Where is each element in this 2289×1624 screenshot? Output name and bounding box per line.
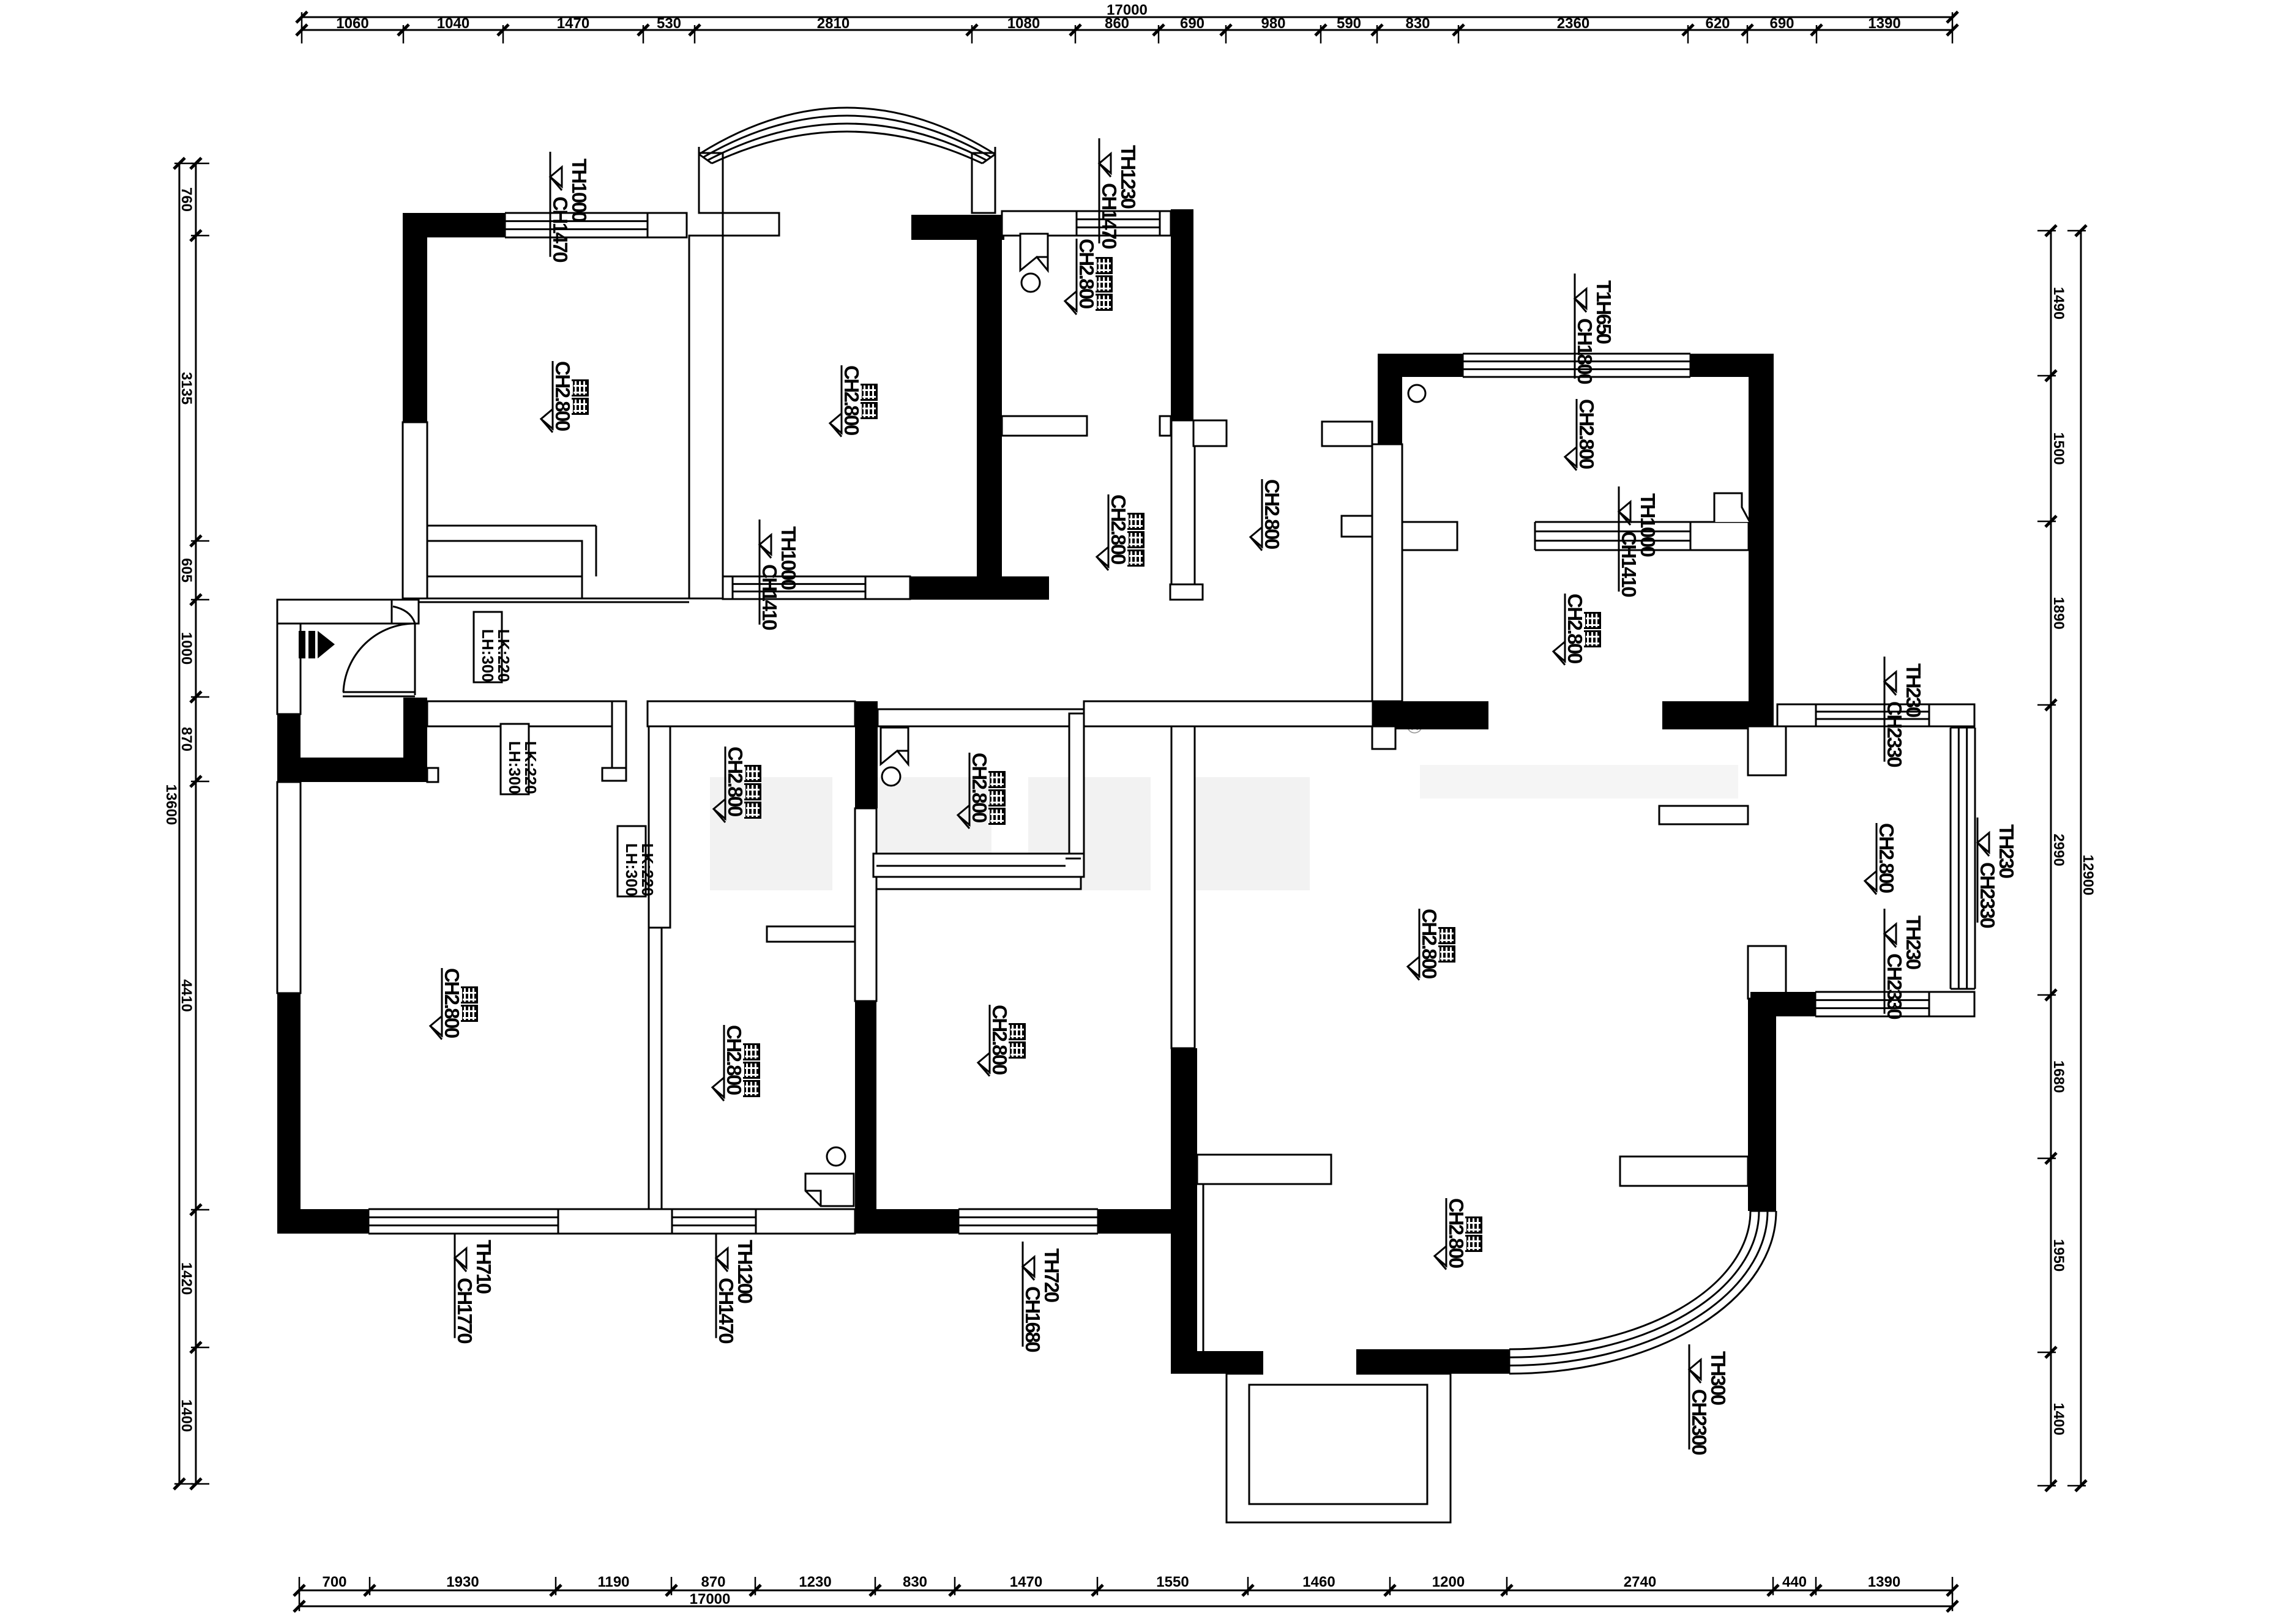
svg-text:1080: 1080 [1007, 15, 1040, 32]
svg-text:1400: 1400 [178, 1399, 195, 1432]
svg-text:CH1410: CH1410 [1618, 531, 1640, 597]
svg-text:CH1470: CH1470 [1098, 183, 1121, 248]
svg-text:CH2.800: CH2.800 [1575, 399, 1598, 469]
svg-text:CH2.800: CH2.800 [968, 753, 991, 822]
svg-text:LH:300: LH:300 [479, 629, 497, 682]
svg-text:17000: 17000 [690, 1591, 731, 1607]
svg-text:700: 700 [322, 1574, 346, 1590]
svg-text:4410: 4410 [178, 979, 195, 1011]
svg-text:CH2.800: CH2.800 [723, 1025, 745, 1095]
svg-text:870: 870 [178, 727, 195, 751]
svg-text:760: 760 [178, 187, 195, 212]
svg-text:1390: 1390 [1868, 1574, 1900, 1590]
svg-text:LH:300: LH:300 [622, 843, 641, 896]
svg-text:CH1800: CH1800 [1574, 318, 1596, 384]
svg-text:CH2.800: CH2.800 [1075, 239, 1098, 308]
svg-text:CH2330: CH2330 [1883, 953, 1906, 1019]
svg-text:CH1770: CH1770 [454, 1278, 476, 1343]
svg-text:830: 830 [1405, 15, 1430, 32]
svg-text:1470: 1470 [557, 15, 589, 32]
svg-text:860: 860 [1105, 15, 1129, 32]
svg-text:1190: 1190 [597, 1574, 629, 1590]
svg-text:13600: 13600 [163, 784, 179, 825]
svg-text:CH1680: CH1680 [1021, 1286, 1044, 1352]
svg-text:CH2.800: CH2.800 [1418, 909, 1441, 978]
svg-text:1230: 1230 [799, 1574, 831, 1590]
svg-text:1060: 1060 [336, 15, 368, 32]
svg-text:CH2.800: CH2.800 [1261, 479, 1283, 549]
svg-text:CH2.800: CH2.800 [441, 968, 463, 1038]
svg-text:CH2.800: CH2.800 [1564, 594, 1586, 663]
svg-text:12900: 12900 [2080, 855, 2096, 896]
svg-text:530: 530 [657, 15, 681, 32]
svg-text:1000: 1000 [178, 632, 195, 665]
svg-text:590: 590 [1337, 15, 1361, 32]
svg-text:3135: 3135 [178, 372, 195, 404]
svg-text:CH2.800: CH2.800 [1875, 823, 1898, 893]
svg-text:2990: 2990 [2050, 833, 2067, 866]
svg-text:1500: 1500 [2050, 432, 2067, 464]
svg-text:CH2.800: CH2.800 [724, 747, 747, 816]
svg-text:1550: 1550 [1156, 1574, 1189, 1590]
svg-text:830: 830 [903, 1574, 927, 1590]
svg-text:620: 620 [1705, 15, 1730, 32]
svg-text:605: 605 [178, 558, 195, 583]
svg-text:870: 870 [701, 1574, 725, 1590]
svg-text:2360: 2360 [1557, 15, 1589, 32]
svg-text:1460: 1460 [1302, 1574, 1335, 1590]
svg-text:CH2.800: CH2.800 [1445, 1198, 1468, 1268]
svg-text:1420: 1420 [178, 1262, 195, 1295]
svg-text:1680: 1680 [2050, 1060, 2067, 1093]
svg-text:CH2.800: CH2.800 [1107, 494, 1130, 564]
svg-text:1470: 1470 [1010, 1574, 1042, 1590]
svg-text:CH2.800: CH2.800 [551, 361, 574, 431]
svg-text:690: 690 [1180, 15, 1204, 32]
svg-text:CH2.800: CH2.800 [988, 1005, 1011, 1075]
svg-text:CH2300: CH2300 [1688, 1389, 1711, 1455]
svg-text:CH1470: CH1470 [715, 1278, 737, 1343]
svg-text:1890: 1890 [2050, 597, 2067, 629]
svg-text:CH2330: CH2330 [1976, 862, 1999, 928]
svg-text:1200: 1200 [1432, 1574, 1465, 1590]
svg-text:1950: 1950 [2050, 1239, 2067, 1272]
svg-text:1930: 1930 [446, 1574, 479, 1590]
svg-text:1390: 1390 [1868, 15, 1900, 32]
svg-text:CH2.800: CH2.800 [840, 365, 863, 435]
svg-text:690: 690 [1769, 15, 1794, 32]
svg-text:CH1470: CH1470 [549, 196, 572, 262]
svg-text:LH:300: LH:300 [506, 741, 524, 794]
svg-text:2740: 2740 [1624, 1574, 1656, 1590]
svg-text:980: 980 [1261, 15, 1285, 32]
svg-text:440: 440 [1782, 1574, 1807, 1590]
svg-text:CH2330: CH2330 [1883, 701, 1906, 767]
svg-text:2810: 2810 [817, 15, 850, 32]
svg-text:CH1410: CH1410 [758, 564, 781, 630]
svg-text:1040: 1040 [437, 15, 469, 32]
svg-text:1490: 1490 [2050, 287, 2067, 319]
svg-text:1400: 1400 [2050, 1402, 2067, 1435]
